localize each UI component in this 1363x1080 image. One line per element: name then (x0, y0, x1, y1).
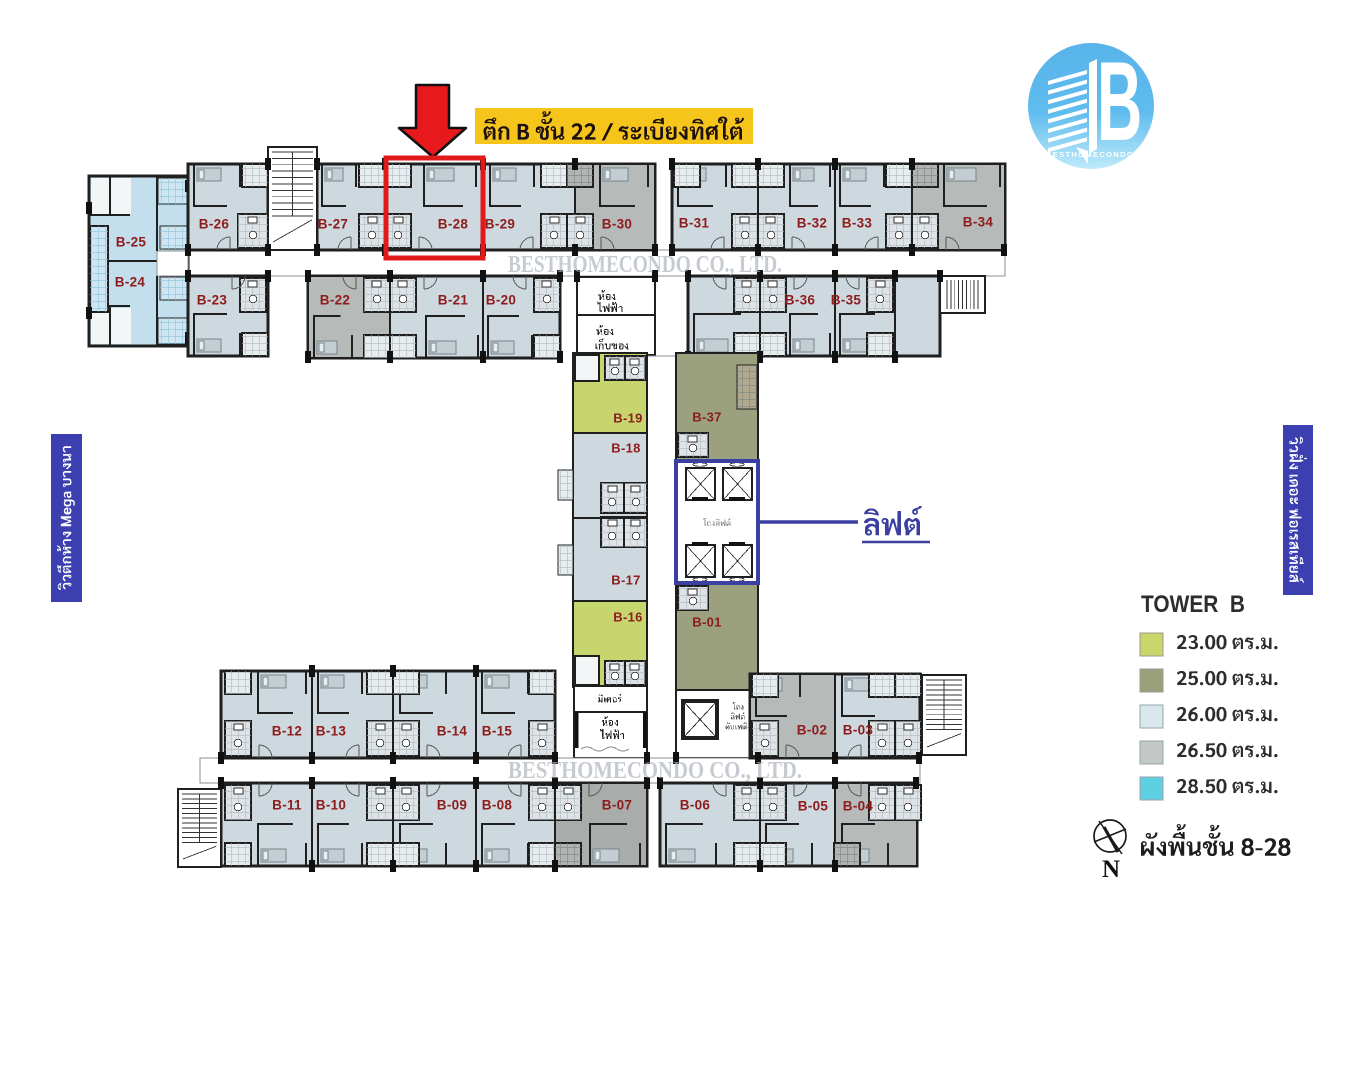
svg-text:B-27: B-27 (318, 217, 348, 232)
svg-text:B-29: B-29 (485, 217, 515, 232)
svg-text:B-04: B-04 (843, 799, 874, 814)
svg-text:B-19: B-19 (613, 411, 642, 426)
svg-text:B-14: B-14 (437, 724, 468, 739)
svg-text:B-11: B-11 (272, 798, 302, 813)
svg-text:B-36: B-36 (785, 293, 816, 308)
svg-text:B-05: B-05 (798, 799, 829, 814)
svg-text:B-33: B-33 (842, 216, 873, 231)
svg-text:B-02: B-02 (797, 723, 827, 738)
svg-text:B-21: B-21 (438, 293, 469, 308)
svg-text:B-28: B-28 (438, 217, 469, 232)
svg-text:B-23: B-23 (197, 293, 228, 308)
svg-text:B-24: B-24 (115, 275, 146, 290)
svg-text:B-18: B-18 (611, 441, 640, 456)
svg-text:B-15: B-15 (482, 724, 513, 739)
svg-text:B-30: B-30 (602, 217, 632, 232)
svg-text:B-26: B-26 (199, 217, 230, 232)
svg-text:B-12: B-12 (272, 724, 302, 739)
svg-text:BESTHOMECONDO CO., LTD.: BESTHOMECONDO CO., LTD. (508, 252, 782, 278)
svg-text:B-22: B-22 (320, 293, 350, 308)
svg-text:B-31: B-31 (679, 216, 710, 231)
svg-text:TOWER B: TOWER B (1141, 591, 1245, 618)
svg-text:B-20: B-20 (486, 293, 516, 308)
svg-text:B-37: B-37 (692, 410, 721, 425)
svg-text:B-08: B-08 (482, 798, 513, 813)
svg-text:B-17: B-17 (611, 573, 640, 588)
svg-text:B-16: B-16 (613, 610, 642, 625)
svg-text:B-25: B-25 (116, 235, 147, 250)
svg-text:BESTHOMECONDO CO., LTD.: BESTHOMECONDO CO., LTD. (508, 758, 802, 784)
svg-text:B: B (1097, 40, 1142, 165)
svg-text:B-06: B-06 (680, 798, 711, 813)
svg-text:B-07: B-07 (602, 798, 632, 813)
svg-text:B-32: B-32 (797, 216, 827, 231)
svg-text:BESTHOMECONDO: BESTHOMECONDO (1046, 150, 1134, 159)
svg-text:B-03: B-03 (843, 723, 874, 738)
svg-text:B-35: B-35 (831, 293, 862, 308)
svg-text:B-01: B-01 (692, 615, 721, 630)
svg-text:N: N (1102, 856, 1120, 883)
svg-text:B-09: B-09 (437, 798, 467, 813)
svg-text:B-34: B-34 (963, 215, 994, 230)
svg-text:B-13: B-13 (316, 724, 347, 739)
svg-text:B-10: B-10 (316, 798, 346, 813)
